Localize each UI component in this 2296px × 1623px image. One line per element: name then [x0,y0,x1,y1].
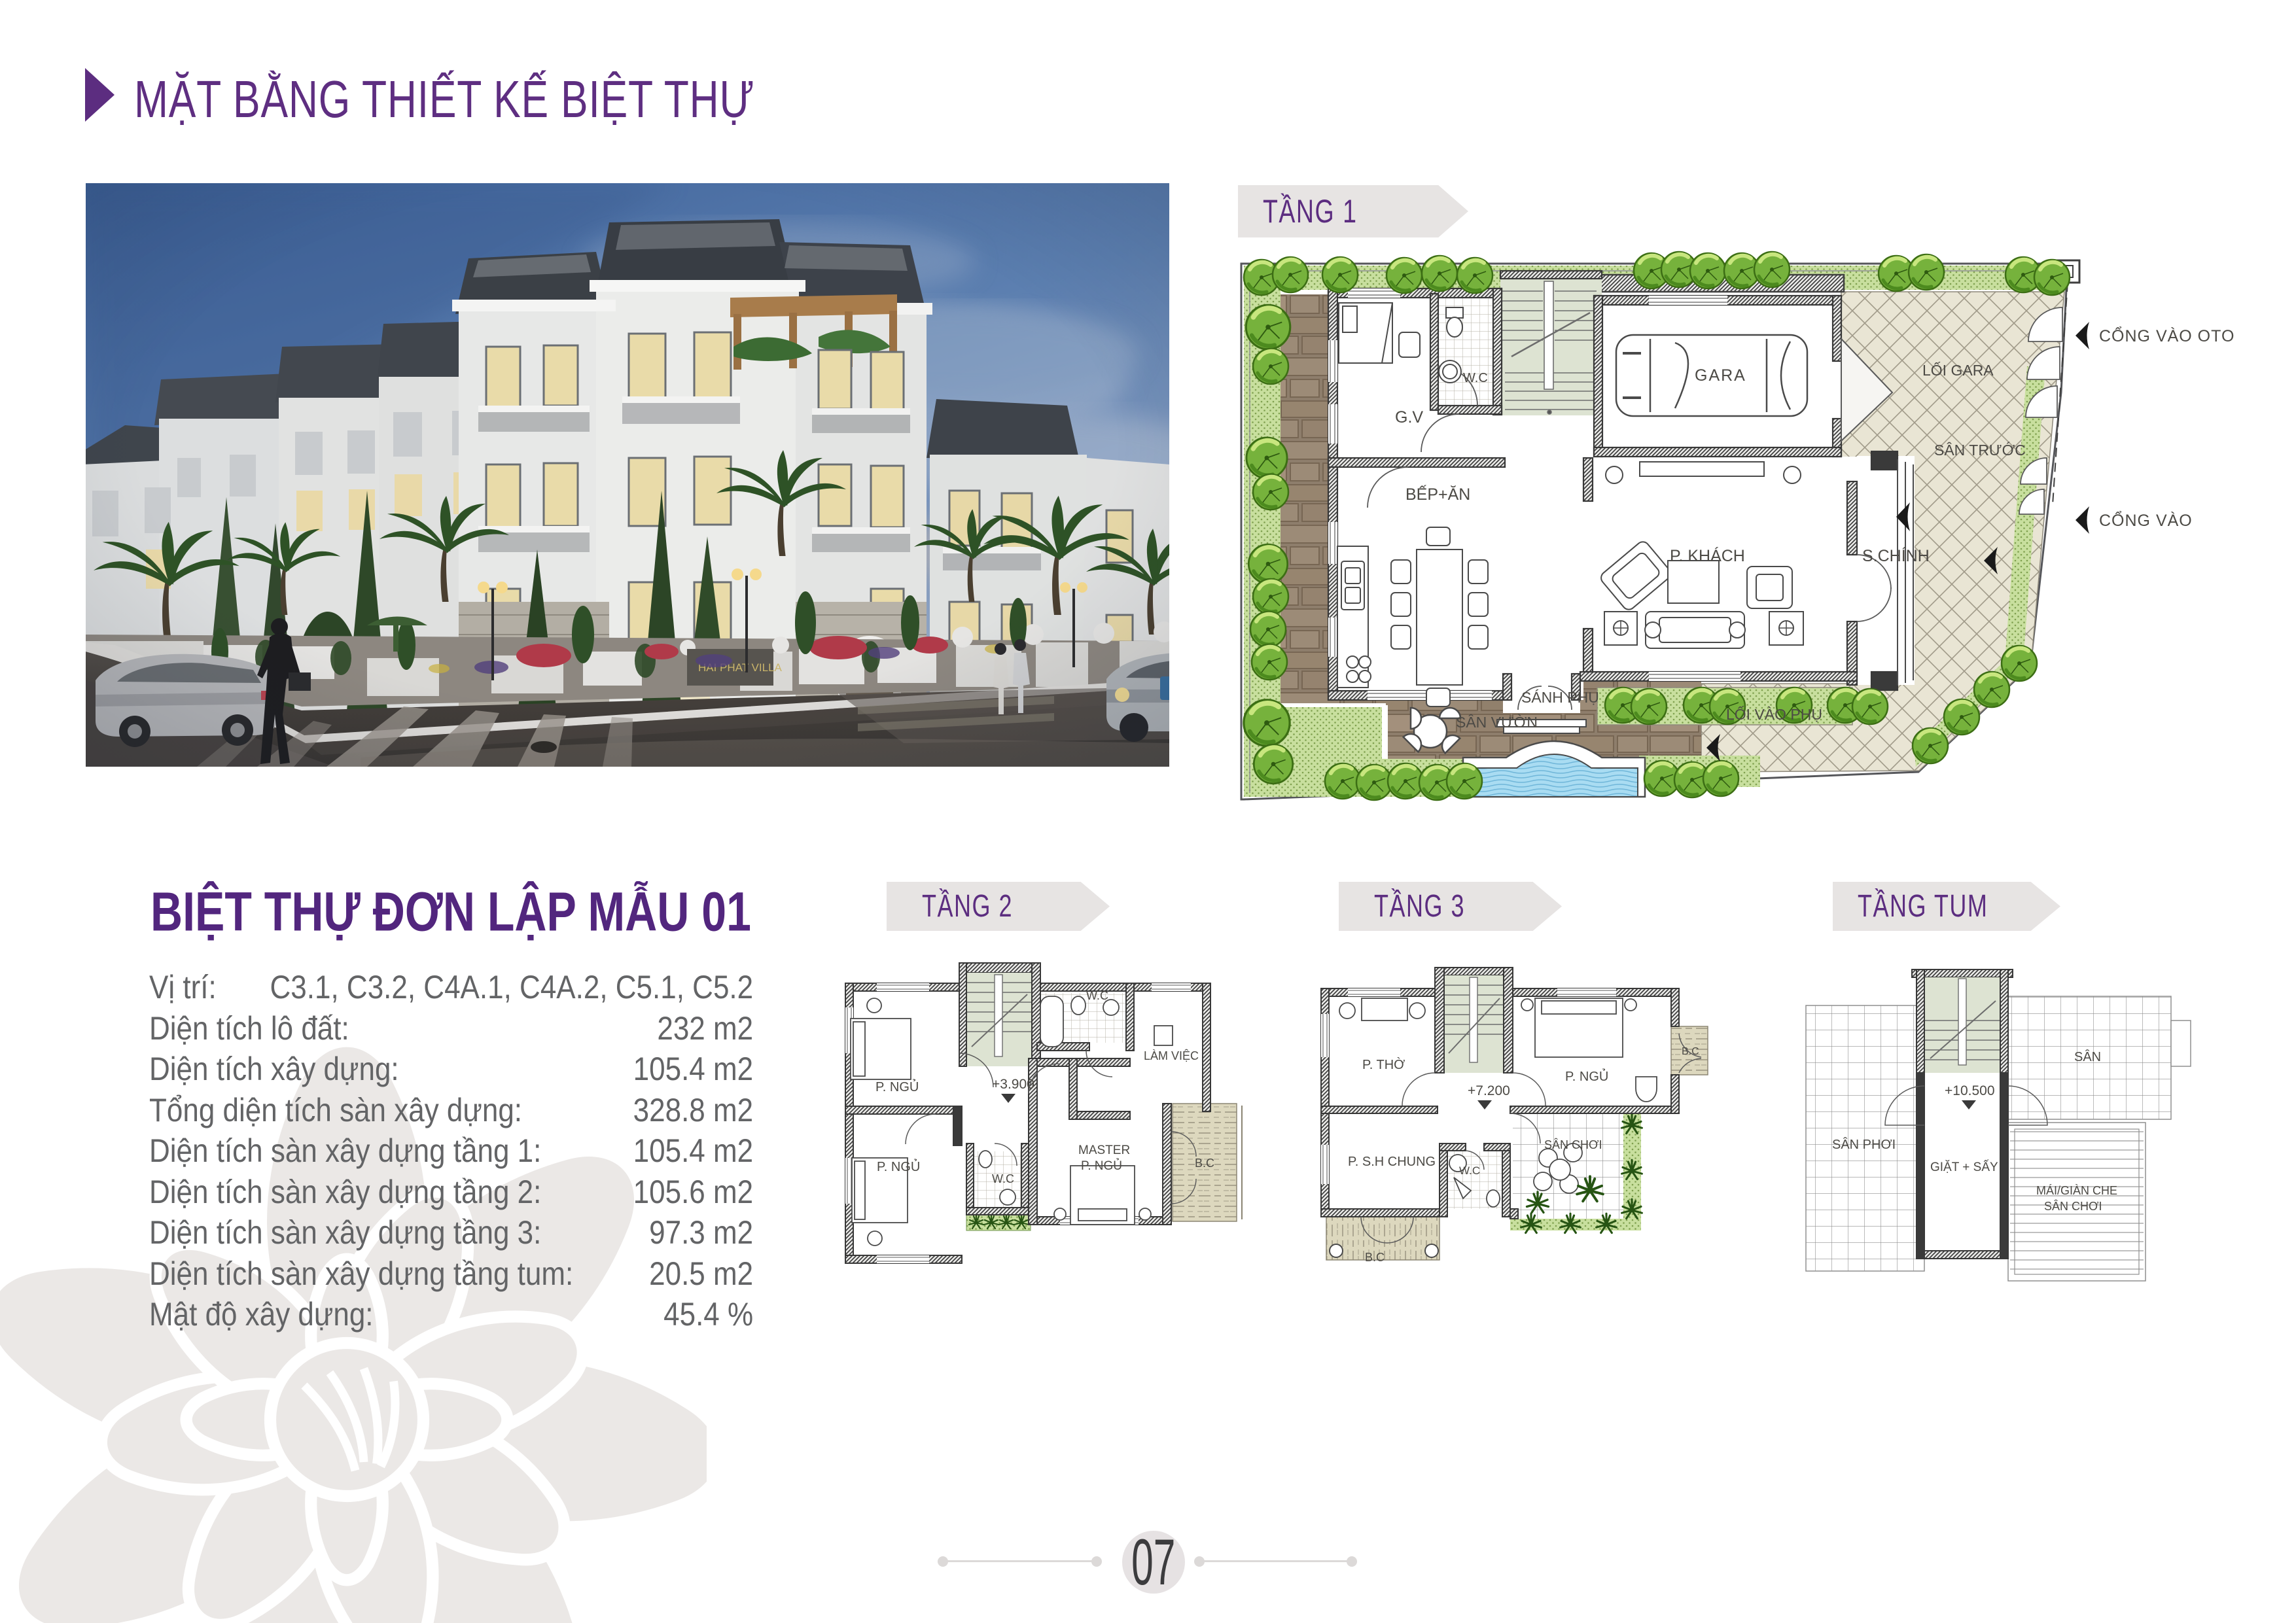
svg-text:P. NGỦ: P. NGỦ [1565,1068,1608,1084]
svg-text:BẾP+ĂN: BẾP+ĂN [1405,485,1470,504]
svg-text:SÁNH PHỤ: SÁNH PHỤ [1521,689,1599,706]
svg-text:+10.500: +10.500 [1945,1083,1995,1098]
svg-text:P. S.H CHUNG: P. S.H CHUNG [1348,1155,1436,1169]
svg-text:W.C: W.C [1086,989,1108,1002]
svg-text:CỔNG VÀO: CỔNG VÀO [2099,510,2193,530]
svg-text:S.CHÍNH: S.CHÍNH [1862,546,1930,565]
svg-text:+3.900: +3.900 [992,1077,1034,1092]
svg-text:GIẶT + SẤY: GIẶT + SẤY [1930,1160,1998,1174]
svg-text:G.V: G.V [1395,408,1423,427]
svg-text:SÂN CHƠI: SÂN CHƠI [2044,1200,2102,1213]
svg-text:LỐI VÀO PHỤ: LỐI VÀO PHỤ [1726,705,1822,723]
svg-text:P. KHÁCH: P. KHÁCH [1670,546,1745,565]
svg-text:P. NGỦ: P. NGỦ [1081,1159,1122,1173]
svg-text:B.C: B.C [1682,1046,1699,1057]
svg-text:LÀM VIỆC: LÀM VIỆC [1144,1049,1199,1062]
svg-text:P. NGỦ: P. NGỦ [877,1159,920,1174]
svg-text:GARA: GARA [1695,366,1746,385]
svg-text:MASTER: MASTER [1078,1143,1130,1157]
svg-text:SÂN CHƠI: SÂN CHƠI [1544,1138,1602,1151]
svg-text:W.C: W.C [1463,371,1488,385]
svg-text:W.C: W.C [1459,1164,1480,1177]
svg-text:P. THỜ: P. THỜ [1362,1057,1405,1072]
svg-text:+7.200: +7.200 [1468,1083,1510,1098]
svg-text:SÂN TRƯỚC: SÂN TRƯỚC [1934,442,2026,459]
svg-text:SÂN VƯỜN: SÂN VƯỜN [1456,714,1538,731]
svg-text:W.C: W.C [992,1172,1014,1185]
svg-text:B.C: B.C [1195,1157,1214,1170]
svg-text:SÂN: SÂN [2074,1049,2101,1064]
svg-text:MÁI/GIÀN CHE: MÁI/GIÀN CHE [2036,1184,2117,1197]
svg-text:P. NGỦ: P. NGỦ [875,1079,919,1094]
svg-text:LỐI GARA: LỐI GARA [1922,361,1994,379]
svg-text:B.C: B.C [1365,1251,1385,1264]
svg-text:CỔNG VÀO OTO: CỔNG VÀO OTO [2099,326,2234,345]
svg-text:SÂN PHƠI: SÂN PHƠI [1832,1137,1896,1152]
